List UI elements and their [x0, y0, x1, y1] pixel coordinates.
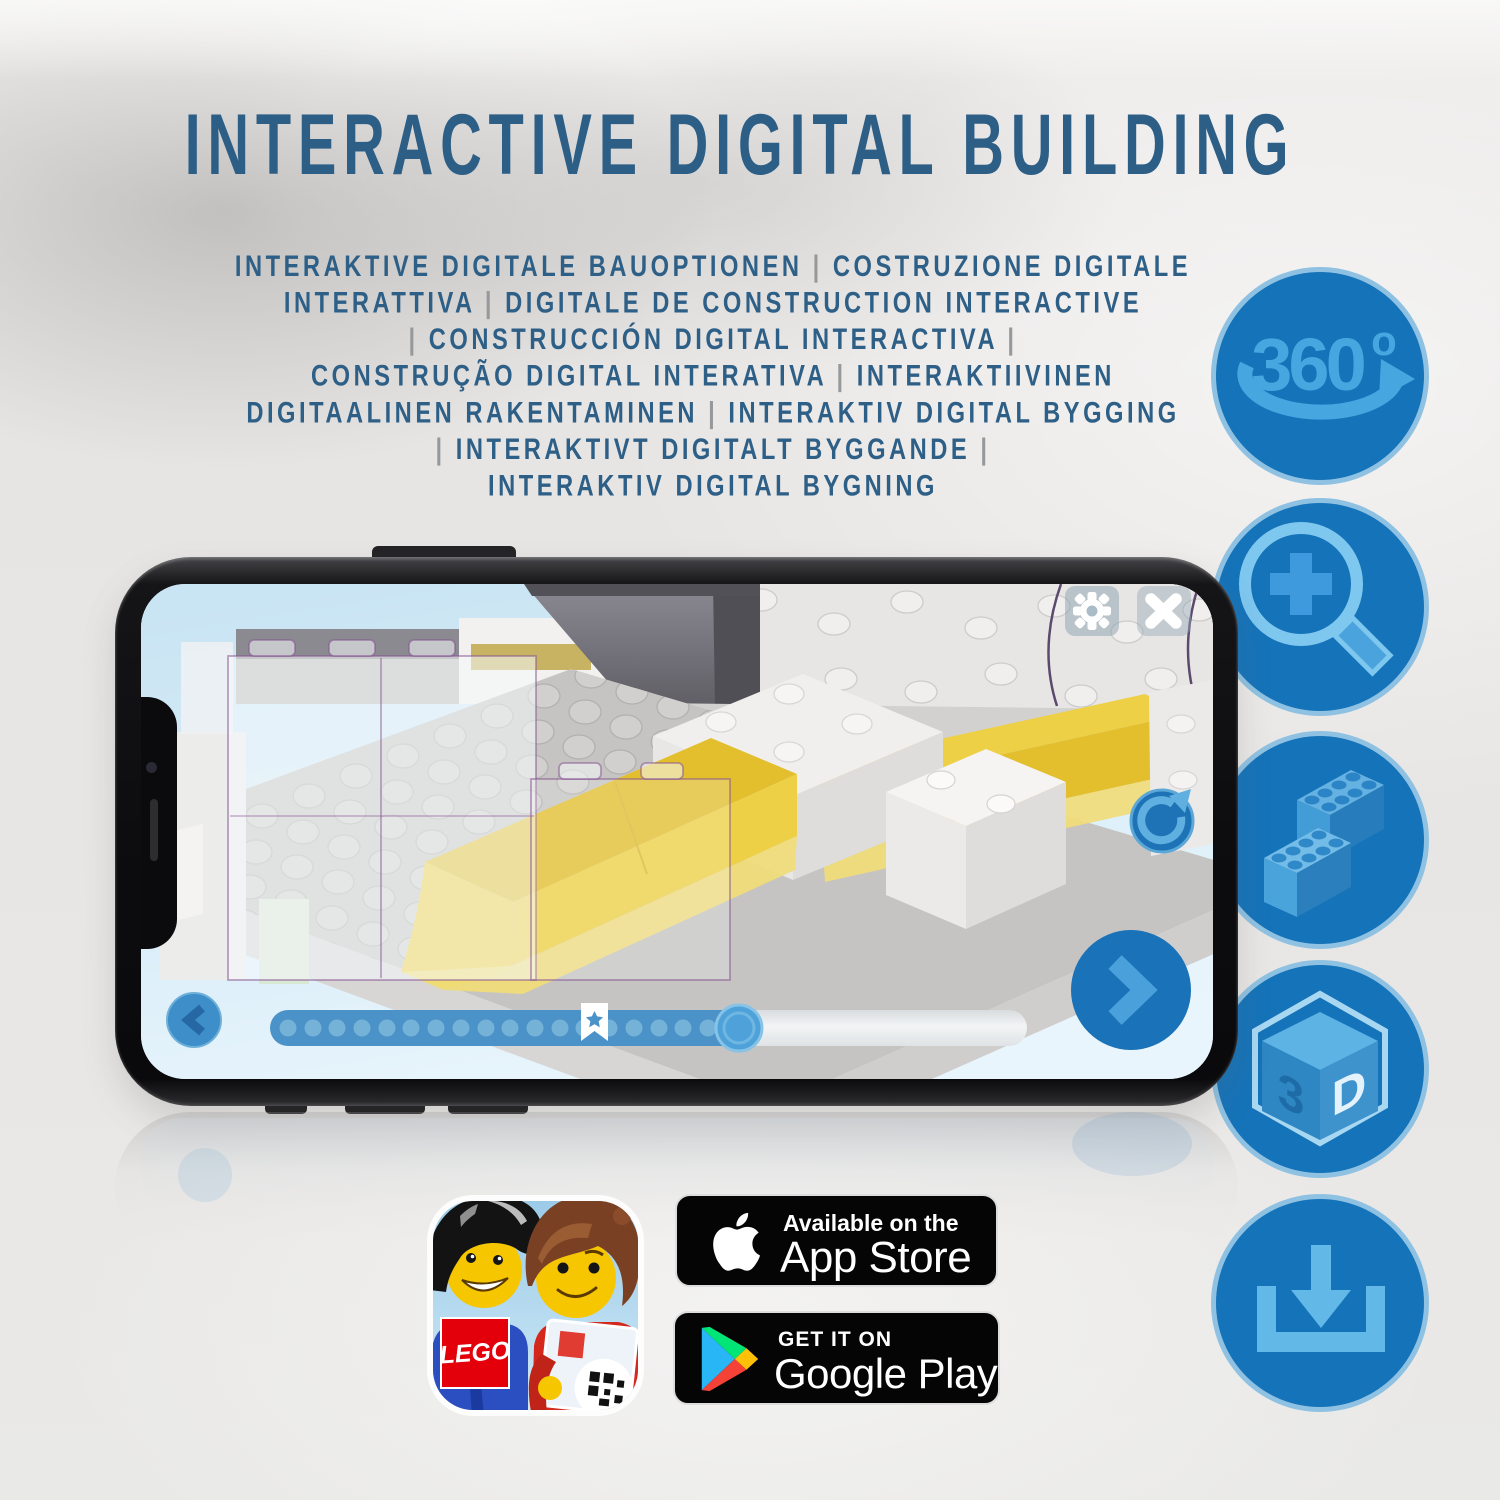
svg-text:o: o [1371, 317, 1397, 364]
svg-text:360: 360 [1251, 323, 1364, 406]
svg-text:LEGO: LEGO [439, 1337, 512, 1370]
